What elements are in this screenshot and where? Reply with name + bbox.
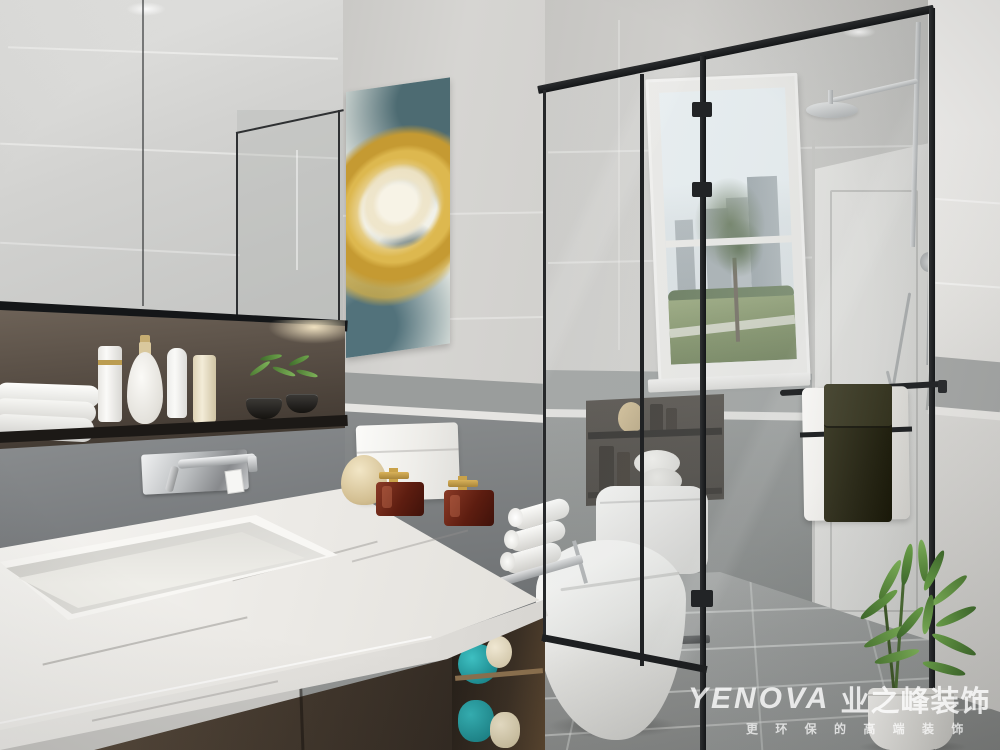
niche-underlight-glow xyxy=(268,320,345,344)
perfume-bottle-amber xyxy=(444,490,494,526)
perfume-cap-bar xyxy=(379,472,409,479)
wall-art-abstract xyxy=(346,77,450,358)
glass-frame-right-stile xyxy=(929,8,935,750)
brand-tagline: 更 环 保 的 高 端 装 饰 xyxy=(746,720,1000,736)
cream-rolled-towel xyxy=(490,712,520,748)
door-hinge xyxy=(691,590,713,607)
mirror-reflected-downlight xyxy=(126,2,166,16)
teal-rolled-towel xyxy=(458,700,494,742)
sink-basin xyxy=(0,500,360,640)
brand-logo: YENOVA 业之峰装饰 xyxy=(688,682,1000,716)
perfume-bottle-amber xyxy=(376,482,424,516)
perfume-cap-bar xyxy=(448,480,478,487)
rolled-towel-end xyxy=(508,508,523,527)
faucet-tag xyxy=(224,469,244,494)
toiletry-tube xyxy=(167,348,187,418)
faucet-spout-tip xyxy=(247,456,257,473)
brand-logo-latin: YENOVA xyxy=(688,682,830,716)
canister-lid-seam xyxy=(357,448,459,454)
mirror-reflected-glass-region xyxy=(237,110,343,326)
glass-frame-stile xyxy=(640,74,644,666)
glass-highlight xyxy=(382,486,392,508)
glass-frame-stile xyxy=(543,90,546,642)
brand-logo-chinese: 业之峰装饰 xyxy=(840,678,990,720)
toiletry-bottle-cream xyxy=(193,355,216,423)
rolled-towel-end xyxy=(504,530,519,549)
mirror-door-seam xyxy=(142,0,144,306)
mirror-reflected-frame-vertical xyxy=(338,110,340,326)
glass-door-hinge-stile xyxy=(700,56,706,750)
glass-highlight xyxy=(450,495,460,517)
door-hinge xyxy=(692,182,712,197)
bottle-gold-band xyxy=(98,360,122,365)
mirror-reflected-frame-vertical xyxy=(236,133,238,327)
door-hinge xyxy=(692,102,712,117)
cream-rolled-towel xyxy=(486,636,512,668)
green-towel-fold xyxy=(824,384,892,428)
toiletry-bottle-cylinder xyxy=(98,346,122,422)
towel-bar-bracket xyxy=(938,380,947,393)
mirror-reflected-shower-pipe xyxy=(296,150,298,270)
bathroom-render: YENOVA 业之峰装饰 更 环 保 的 高 端 装 饰 xyxy=(0,0,1000,750)
rolled-towel-end xyxy=(500,552,515,571)
